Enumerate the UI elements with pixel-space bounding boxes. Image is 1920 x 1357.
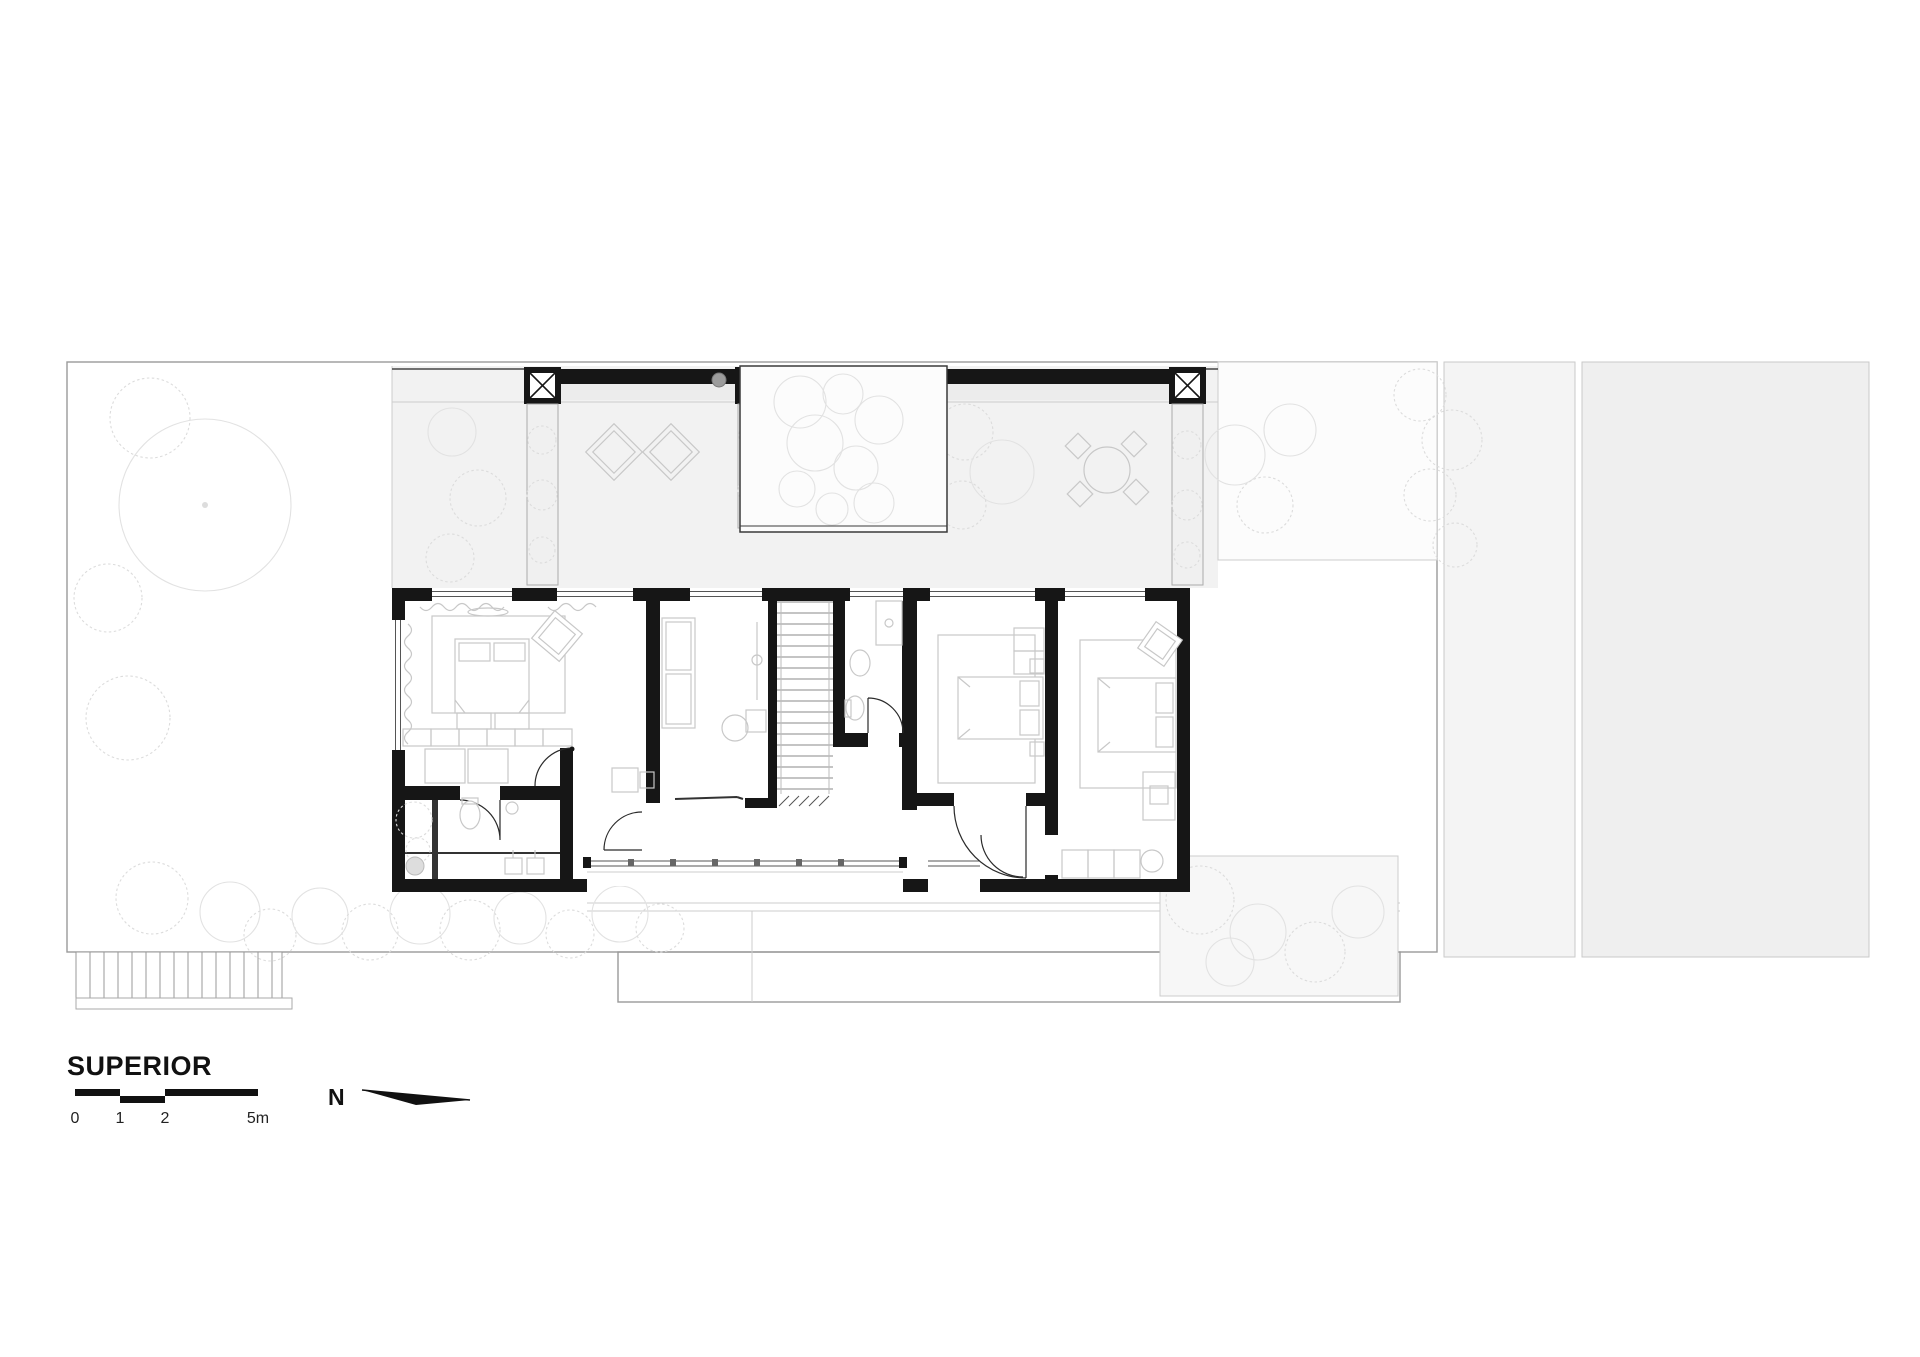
north-label: N bbox=[328, 1084, 345, 1110]
roof-drain-dot bbox=[712, 373, 726, 387]
building bbox=[392, 588, 1190, 892]
beam-shadow bbox=[561, 384, 735, 400]
shrub bbox=[110, 378, 190, 458]
pedestal-sink bbox=[1141, 850, 1163, 872]
shrub bbox=[116, 862, 188, 934]
bed bbox=[455, 639, 529, 713]
tree-trunk bbox=[202, 502, 208, 508]
scale-segment bbox=[165, 1089, 258, 1096]
neighbor-plots bbox=[1444, 362, 1869, 957]
courtyard-void bbox=[740, 366, 947, 532]
planter bbox=[527, 404, 558, 585]
tree bbox=[200, 882, 260, 942]
beam-shadow bbox=[943, 384, 1169, 400]
garden-bed-lower-right bbox=[1160, 856, 1398, 996]
steps-lip bbox=[76, 998, 292, 1009]
neighbor-plot-a bbox=[1444, 362, 1575, 957]
scale-tick-0: 0 bbox=[71, 1110, 80, 1127]
scale-tick-5m: 5m bbox=[247, 1110, 269, 1127]
tree bbox=[292, 888, 348, 944]
shrub bbox=[440, 900, 500, 960]
door-hinge bbox=[570, 747, 575, 752]
floor-plan-canvas: SUPERIOR 0 1 2 5m N bbox=[0, 0, 1920, 1357]
window bbox=[1060, 588, 1150, 601]
building-interior-floor bbox=[398, 594, 1184, 886]
column-icon bbox=[524, 367, 561, 404]
scale-segment bbox=[75, 1089, 120, 1096]
shrub bbox=[74, 564, 142, 632]
bed bbox=[958, 677, 1043, 739]
exterior-steps bbox=[76, 952, 292, 1009]
scale-bar: 0 1 2 5m bbox=[71, 1089, 270, 1127]
garden-pocket bbox=[1218, 362, 1437, 560]
toilet bbox=[460, 801, 480, 829]
scale-tick-2: 2 bbox=[161, 1110, 170, 1127]
shower-drain bbox=[406, 857, 424, 875]
beam bbox=[943, 369, 1169, 384]
title-block: SUPERIOR 0 1 2 5m N bbox=[67, 1051, 470, 1127]
window bbox=[552, 588, 638, 601]
steps-outline bbox=[76, 952, 282, 998]
tree bbox=[494, 892, 546, 944]
beam bbox=[561, 369, 735, 384]
north-arrow-icon: N bbox=[328, 1084, 470, 1110]
planter bbox=[1172, 404, 1203, 585]
tree bbox=[592, 886, 648, 942]
sink bbox=[850, 650, 870, 676]
scale-segment bbox=[120, 1096, 165, 1103]
shrub bbox=[546, 910, 594, 958]
column-icon bbox=[1169, 367, 1206, 404]
scale-tick-1: 1 bbox=[116, 1110, 125, 1127]
bed bbox=[1098, 678, 1176, 752]
floor-plan-drawing: SUPERIOR 0 1 2 5m N bbox=[0, 0, 1920, 1357]
neighbor-plot-b bbox=[1582, 362, 1869, 957]
window bbox=[427, 588, 517, 601]
window bbox=[925, 588, 1040, 601]
void-outline bbox=[740, 366, 947, 532]
floor-title: SUPERIOR bbox=[67, 1051, 212, 1081]
window bbox=[685, 588, 767, 601]
tree bbox=[390, 884, 450, 944]
shrub bbox=[86, 676, 170, 760]
window bbox=[850, 588, 903, 601]
